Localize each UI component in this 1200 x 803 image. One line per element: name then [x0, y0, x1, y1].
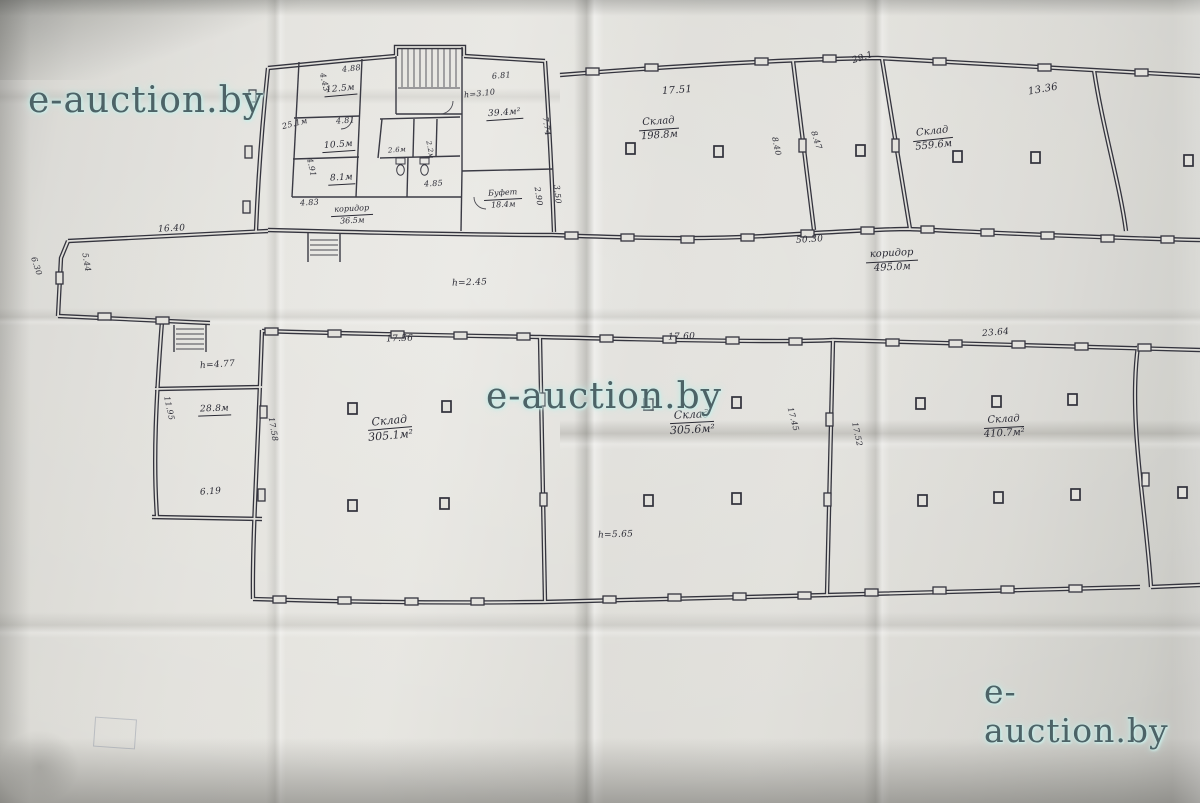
- dim-label: 4.85: [424, 180, 443, 190]
- watermark-bottom-right: e-auction.by: [984, 672, 1200, 750]
- dim-label: 3.50: [551, 185, 562, 205]
- dim-label: 17.51: [662, 84, 693, 97]
- dim-label: 4.83: [300, 199, 319, 209]
- dim-label: 50.30: [796, 234, 824, 246]
- room-label-corridor: коридор 495.0м: [849, 246, 934, 276]
- room-area-label: 39.4м²: [486, 107, 524, 122]
- room-label-warehouse-410: Склад 410.7м²: [961, 412, 1046, 442]
- dim-label: 16.40: [158, 223, 186, 234]
- dim-label: 6.81: [492, 71, 512, 82]
- dim-label: 7.74: [540, 116, 552, 136]
- dim-label: 2.90: [532, 186, 544, 206]
- faint-stamp-mark: [93, 717, 137, 750]
- plumbing-fixtures: [396, 158, 429, 175]
- watermark-center: e-auction.by: [486, 376, 722, 417]
- room-label-office-corridor: коридор 36.5м: [321, 202, 382, 226]
- room-name: коридор: [330, 203, 373, 217]
- room-label-buffet: Буфет 18.4м: [473, 186, 532, 210]
- dim-label: 17.56: [386, 334, 414, 345]
- dim-label: 5.44: [79, 252, 91, 272]
- room-area-label: 28.8м: [198, 403, 231, 416]
- height-label: h=2.45: [452, 277, 488, 288]
- room-name: Буфет: [484, 187, 522, 201]
- floorplan-photo: 17.51 13.36 29.1 Склад 198.8м Склад 559.…: [0, 0, 1200, 803]
- dim-label: 2.6м: [388, 146, 407, 155]
- room-label-warehouse-198: Склад 198.8м: [621, 113, 697, 144]
- dim-label: 4.81: [336, 116, 356, 126]
- watermark-top-left: e-auction.by: [28, 80, 264, 121]
- height-label: h=5.65: [598, 529, 634, 540]
- room-area-label: 8.1м: [328, 172, 356, 185]
- dim-label: 6.19: [200, 486, 222, 498]
- dim-label: 17.60: [668, 332, 696, 343]
- room-area-label: 10.5м: [322, 139, 356, 153]
